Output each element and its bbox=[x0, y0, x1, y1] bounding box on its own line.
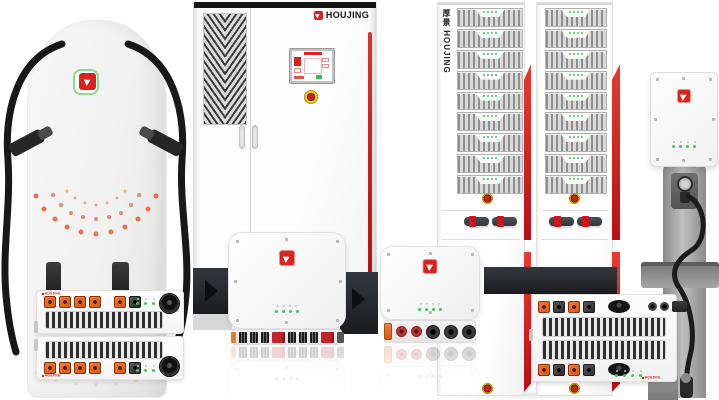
brand-logo-icon bbox=[279, 250, 295, 266]
module-led bbox=[495, 115, 497, 117]
rectifier-module: HOUJING bbox=[36, 290, 184, 334]
status-leds bbox=[275, 305, 299, 313]
module-led bbox=[495, 178, 497, 180]
rectifier-module: HOUJING bbox=[36, 336, 184, 380]
module-notch bbox=[475, 113, 505, 121]
module-led bbox=[577, 32, 579, 34]
connector-dark bbox=[553, 364, 565, 376]
indicator-dot bbox=[106, 202, 109, 205]
rack-emergency-stop-bottom bbox=[482, 383, 493, 394]
module-led bbox=[577, 95, 579, 97]
rack-emergency-stop-bottom bbox=[569, 383, 580, 394]
indicator-dot bbox=[119, 211, 123, 215]
connector-orange bbox=[89, 362, 101, 374]
connector-stripe bbox=[250, 348, 258, 359]
module-led bbox=[495, 53, 497, 55]
led-tick bbox=[694, 141, 696, 143]
module-led bbox=[573, 53, 575, 55]
led-green bbox=[615, 374, 618, 377]
door-handle-right bbox=[252, 125, 258, 149]
connector-round-red bbox=[396, 326, 407, 337]
module-notch bbox=[561, 176, 591, 184]
rack-module bbox=[545, 8, 607, 27]
led-tick bbox=[687, 141, 689, 143]
module-led bbox=[487, 11, 489, 13]
indicator-dot bbox=[135, 217, 140, 222]
connector-round-black bbox=[444, 325, 458, 339]
indicator-led bbox=[282, 310, 285, 313]
cabinet-brand: HOUJING bbox=[314, 10, 369, 20]
rack-module bbox=[457, 92, 523, 111]
module-notch bbox=[561, 93, 591, 101]
module-led bbox=[487, 178, 489, 180]
module-led bbox=[573, 95, 575, 97]
led-green bbox=[679, 145, 682, 148]
module-led bbox=[581, 11, 583, 13]
connector-stripe bbox=[261, 332, 269, 343]
indicator-dot bbox=[34, 193, 39, 198]
module-led bbox=[569, 11, 571, 13]
connector-stripe bbox=[261, 348, 269, 359]
connector-dark bbox=[553, 301, 565, 313]
indicator-dot bbox=[69, 211, 73, 215]
brand-logo-text: HOUJING bbox=[326, 10, 369, 20]
indicator-dot bbox=[94, 383, 98, 387]
module-led bbox=[483, 136, 485, 138]
rack-module bbox=[545, 92, 607, 111]
module-leds bbox=[615, 370, 642, 377]
indicator-led bbox=[426, 303, 428, 305]
indicator-led bbox=[425, 308, 428, 311]
connector-stripe bbox=[288, 348, 296, 359]
module-led bbox=[491, 136, 493, 138]
led-pair bbox=[679, 141, 682, 148]
connector-stripe bbox=[288, 332, 296, 343]
indicator-dot bbox=[81, 215, 85, 219]
module-led bbox=[487, 53, 489, 55]
indicator-led bbox=[426, 381, 428, 383]
module-led bbox=[495, 95, 497, 97]
led-tick bbox=[145, 365, 147, 367]
module-notch bbox=[561, 72, 591, 80]
rack-module-stack bbox=[457, 8, 523, 194]
indicator-dot bbox=[94, 217, 98, 221]
module-notch bbox=[561, 134, 591, 142]
rotary-switch bbox=[464, 217, 489, 226]
product-collage: HOUJING 厚景 HOUJING bbox=[0, 0, 719, 400]
module-notch bbox=[561, 51, 591, 59]
connector-round-red bbox=[396, 349, 407, 360]
indicator-led bbox=[296, 310, 299, 313]
indicator-led bbox=[295, 383, 297, 385]
module-led bbox=[483, 11, 485, 13]
module-led bbox=[581, 157, 583, 159]
indicator-led bbox=[296, 377, 299, 380]
led-green bbox=[631, 374, 634, 377]
module-led bbox=[577, 115, 579, 117]
led-green bbox=[144, 369, 147, 372]
module-notch bbox=[561, 9, 591, 17]
module-vent-grille bbox=[542, 317, 666, 337]
led-tick bbox=[137, 298, 139, 300]
module-led bbox=[569, 74, 571, 76]
module-led bbox=[483, 115, 485, 117]
module-led bbox=[573, 11, 575, 13]
indicator-dot bbox=[95, 204, 98, 207]
module-led bbox=[581, 115, 583, 117]
connector-dark bbox=[583, 301, 595, 313]
indicator-led bbox=[418, 308, 421, 311]
led-pair bbox=[152, 365, 155, 372]
rack-module bbox=[457, 112, 523, 131]
connector-orange bbox=[568, 301, 580, 313]
rack-module bbox=[545, 154, 607, 173]
indicator-led bbox=[432, 381, 434, 383]
cabinet-base bbox=[193, 314, 232, 330]
rack-emergency-stop bbox=[569, 193, 580, 204]
rack-module bbox=[457, 8, 523, 27]
indicator-led bbox=[275, 377, 278, 380]
indicator-dot bbox=[74, 382, 78, 386]
module-led bbox=[491, 11, 493, 13]
indicator-dot bbox=[74, 197, 77, 200]
led-tick bbox=[145, 298, 147, 300]
rack-module bbox=[457, 133, 523, 152]
indicator-led bbox=[432, 375, 435, 378]
cabinet-red-stripe bbox=[368, 32, 372, 294]
wall-inverter-small bbox=[380, 246, 480, 343]
connector-stripe bbox=[299, 332, 307, 343]
rotary-switch bbox=[549, 217, 574, 226]
brand-logo-icon bbox=[314, 11, 323, 20]
indicator-dot bbox=[51, 193, 55, 197]
module-led bbox=[573, 74, 575, 76]
module-led bbox=[495, 32, 497, 34]
terminal-strip bbox=[384, 320, 476, 343]
rotary-switch bbox=[577, 217, 602, 226]
module-notch bbox=[561, 155, 591, 163]
connector-red-wide bbox=[321, 348, 334, 359]
connector-rsm bbox=[648, 302, 657, 311]
module-notch bbox=[475, 155, 505, 163]
indicator-led bbox=[282, 377, 285, 380]
module-led bbox=[577, 157, 579, 159]
station-brand-logo bbox=[73, 69, 99, 95]
module-led bbox=[569, 115, 571, 117]
module-led bbox=[581, 53, 583, 55]
led-green bbox=[136, 369, 139, 372]
connector-tab-orange bbox=[231, 332, 236, 343]
connector-round-red bbox=[411, 349, 422, 360]
indicator-led bbox=[420, 303, 422, 305]
rack-red-stripe bbox=[524, 64, 531, 240]
module-led bbox=[569, 95, 571, 97]
indicator-led bbox=[283, 383, 285, 385]
indicator-led bbox=[289, 305, 291, 307]
module-led bbox=[483, 53, 485, 55]
module-led bbox=[495, 11, 497, 13]
module-led bbox=[487, 74, 489, 76]
connector-tab-orange-v bbox=[384, 323, 392, 340]
module-badge: HOUJING bbox=[642, 376, 661, 379]
door-handle-left bbox=[239, 125, 245, 149]
indicator-dot bbox=[114, 382, 118, 386]
module-notch bbox=[475, 93, 505, 101]
rack-side-label: 厚景 HOUJING bbox=[441, 9, 452, 74]
rack-module-stack bbox=[545, 8, 607, 194]
module-led bbox=[495, 136, 497, 138]
inverter-body bbox=[228, 232, 346, 329]
wall-inverter-large bbox=[228, 232, 346, 345]
indicator-dot bbox=[153, 193, 158, 198]
indicator-dot bbox=[65, 225, 70, 230]
module-led bbox=[491, 74, 493, 76]
rack-module bbox=[457, 71, 523, 90]
module-led bbox=[487, 95, 489, 97]
led-tick bbox=[673, 141, 675, 143]
indicator-dot bbox=[122, 225, 127, 230]
module-notch bbox=[561, 113, 591, 121]
module-led bbox=[483, 74, 485, 76]
terminal-strip bbox=[232, 329, 342, 345]
module-led bbox=[581, 32, 583, 34]
indicator-led bbox=[418, 375, 421, 378]
indicator-dot bbox=[146, 206, 151, 211]
indicator-led bbox=[438, 303, 440, 305]
indicator-dot bbox=[94, 232, 99, 237]
rack-module bbox=[545, 71, 607, 90]
indicator-led bbox=[289, 310, 292, 313]
module-led bbox=[581, 74, 583, 76]
connector-stripe bbox=[310, 332, 318, 343]
module-led bbox=[483, 178, 485, 180]
indicator-led bbox=[277, 305, 279, 307]
inverter-body bbox=[380, 246, 480, 320]
module-led bbox=[491, 115, 493, 117]
led-pair bbox=[672, 141, 675, 148]
connector-cap bbox=[337, 332, 344, 343]
led-tick bbox=[632, 370, 634, 372]
connector-rsm bbox=[660, 302, 669, 311]
connector-stripe bbox=[250, 332, 258, 343]
module-led bbox=[573, 32, 575, 34]
led-pair bbox=[136, 298, 139, 305]
indicator-dot bbox=[59, 203, 63, 207]
led-green bbox=[144, 302, 147, 305]
cabinet-top-band bbox=[194, 2, 376, 8]
connector-stripe bbox=[239, 348, 247, 359]
led-pair bbox=[615, 370, 618, 377]
charging-gun-icon bbox=[677, 176, 693, 192]
module-notch bbox=[475, 9, 505, 17]
connector-orange bbox=[59, 362, 71, 374]
rack-module bbox=[457, 29, 523, 48]
led-pair bbox=[144, 298, 147, 305]
module-notch bbox=[475, 30, 505, 38]
led-tick bbox=[616, 370, 618, 372]
module-led bbox=[491, 32, 493, 34]
rotary-switch bbox=[492, 217, 517, 226]
indicator-dot bbox=[108, 230, 113, 235]
rack-module bbox=[545, 133, 607, 152]
led-tick bbox=[137, 365, 139, 367]
led-pair bbox=[144, 365, 147, 372]
module-led bbox=[495, 157, 497, 159]
wall-inverter-large-reflection bbox=[228, 345, 346, 400]
connector-orange bbox=[74, 296, 86, 308]
led-tick bbox=[153, 365, 155, 367]
module-led bbox=[581, 95, 583, 97]
hmi-display bbox=[289, 48, 335, 84]
connector-knob bbox=[608, 300, 630, 313]
connector-tab-orange-v bbox=[384, 346, 392, 363]
indicator-dot bbox=[129, 203, 133, 207]
module-notch bbox=[475, 51, 505, 59]
indicator-led bbox=[295, 305, 297, 307]
dark-band-right bbox=[484, 267, 617, 294]
module-led bbox=[487, 115, 489, 117]
module-vent-grille bbox=[45, 341, 163, 359]
module-vent-grille bbox=[542, 340, 666, 360]
status-leds bbox=[418, 303, 442, 311]
module-led bbox=[495, 74, 497, 76]
status-leds bbox=[275, 377, 299, 385]
module-connectors bbox=[44, 296, 141, 308]
indicator-dot bbox=[65, 189, 68, 192]
pedestal-crossbar bbox=[641, 262, 719, 288]
module-led bbox=[491, 53, 493, 55]
wallbox-charger bbox=[650, 72, 718, 167]
connector-orange bbox=[114, 362, 126, 374]
led-green bbox=[152, 369, 155, 372]
indicator-led bbox=[289, 377, 292, 380]
connector-orange bbox=[538, 364, 550, 376]
led-tick bbox=[624, 370, 626, 372]
rack-module bbox=[545, 175, 607, 194]
rack-emergency-stop bbox=[482, 193, 493, 204]
indicator-dot bbox=[124, 189, 127, 192]
led-pair bbox=[686, 141, 689, 148]
inverter-body bbox=[228, 361, 346, 400]
module-leds bbox=[136, 365, 163, 372]
connector-stripe bbox=[299, 348, 307, 359]
led-tick bbox=[640, 370, 642, 372]
fan-icon bbox=[160, 357, 179, 376]
connector-orange bbox=[74, 362, 86, 374]
module-led bbox=[573, 157, 575, 159]
module-led bbox=[573, 136, 575, 138]
led-green bbox=[136, 302, 139, 305]
led-pair bbox=[136, 365, 139, 372]
rectifier-module-wide: HOUJING bbox=[531, 294, 677, 382]
module-led bbox=[577, 53, 579, 55]
indicator-led bbox=[275, 310, 278, 313]
indicator-led bbox=[277, 383, 279, 385]
module-connectors bbox=[538, 300, 687, 313]
status-leds bbox=[672, 141, 696, 148]
connector-rect bbox=[672, 301, 687, 312]
connector-red-wide bbox=[321, 332, 334, 343]
module-led bbox=[569, 136, 571, 138]
connector-orange bbox=[89, 296, 101, 308]
connector-round-black bbox=[462, 325, 476, 339]
dark-band-left bbox=[193, 268, 232, 314]
module-badge: HOUJING bbox=[42, 374, 61, 377]
connector-dark bbox=[583, 364, 595, 376]
module-led bbox=[581, 136, 583, 138]
indicator-dot bbox=[116, 197, 119, 200]
module-led bbox=[569, 178, 571, 180]
module-vent-grille bbox=[45, 311, 163, 329]
connector-orange bbox=[114, 296, 126, 308]
rack-module bbox=[457, 175, 523, 194]
rack-module bbox=[545, 29, 607, 48]
module-led bbox=[491, 157, 493, 159]
led-green bbox=[686, 145, 689, 148]
led-green bbox=[672, 145, 675, 148]
indicator-led bbox=[420, 381, 422, 383]
connector-red-wide bbox=[272, 332, 285, 343]
module-notch bbox=[561, 30, 591, 38]
brand-logo-icon bbox=[677, 89, 691, 103]
connector-orange bbox=[538, 301, 550, 313]
module-led bbox=[483, 95, 485, 97]
led-green bbox=[693, 145, 696, 148]
module-led bbox=[487, 136, 489, 138]
connector-stripe bbox=[310, 348, 318, 359]
module-led bbox=[491, 178, 493, 180]
brand-logo-icon bbox=[423, 259, 438, 274]
rack-module bbox=[457, 154, 523, 173]
module-led bbox=[569, 53, 571, 55]
rack-module bbox=[545, 50, 607, 69]
module-led bbox=[573, 115, 575, 117]
emergency-stop-button bbox=[304, 90, 318, 104]
connector-orange bbox=[568, 364, 580, 376]
brand-arrow-icon bbox=[79, 73, 96, 90]
module-connectors bbox=[44, 362, 141, 374]
indicator-led bbox=[283, 305, 285, 307]
connector-orange bbox=[44, 296, 56, 308]
connector-orange bbox=[59, 296, 71, 308]
connector-stripe bbox=[239, 332, 247, 343]
terminal-strip bbox=[232, 345, 342, 361]
module-notch bbox=[475, 134, 505, 142]
led-pair bbox=[152, 298, 155, 305]
indicator-dot bbox=[42, 206, 47, 211]
connector-round-red bbox=[411, 326, 422, 337]
module-led bbox=[491, 95, 493, 97]
module-leds bbox=[136, 298, 163, 305]
indicator-dot bbox=[137, 193, 141, 197]
indicator-dot bbox=[84, 202, 87, 205]
connector-cap bbox=[337, 348, 344, 359]
connector-red-wide bbox=[272, 348, 285, 359]
led-tick bbox=[153, 298, 155, 300]
led-pair bbox=[623, 370, 626, 377]
module-led bbox=[487, 157, 489, 159]
module-led bbox=[569, 32, 571, 34]
connector-round-black bbox=[426, 325, 440, 339]
indicator-led bbox=[425, 375, 428, 378]
indicator-dot bbox=[107, 215, 111, 219]
indicator-dot bbox=[52, 217, 57, 222]
rack-red-stripe bbox=[612, 64, 620, 240]
fan-icon bbox=[160, 294, 179, 313]
module-led bbox=[581, 178, 583, 180]
indicator-led bbox=[439, 308, 442, 311]
indicator-led bbox=[289, 383, 291, 385]
